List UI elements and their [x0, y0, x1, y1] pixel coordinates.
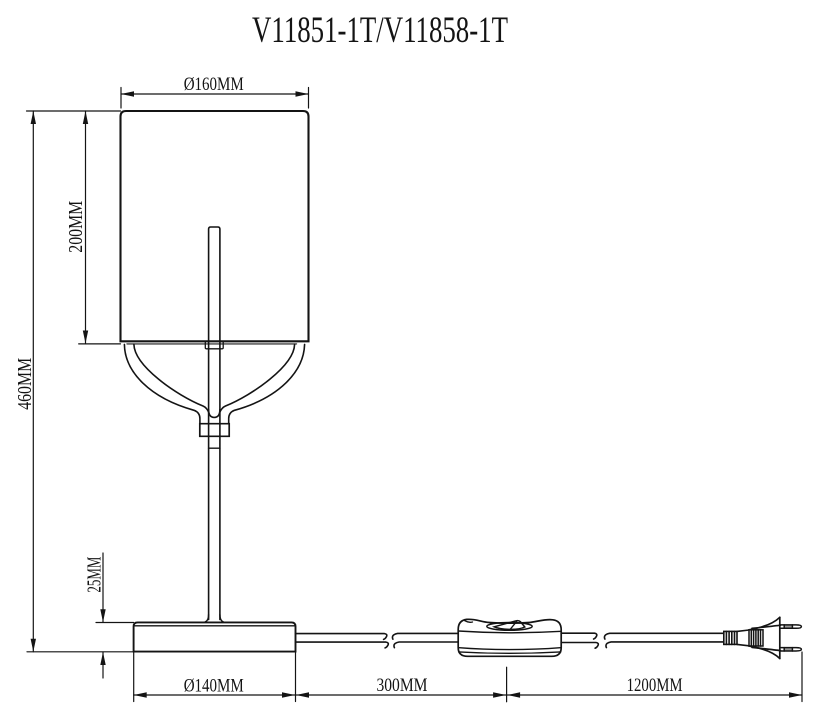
svg-text:Ø160MM: Ø160MM	[184, 74, 244, 95]
svg-text:25MM: 25MM	[83, 556, 105, 592]
svg-text:200MM: 200MM	[65, 201, 87, 253]
svg-text:460MM: 460MM	[14, 358, 36, 410]
svg-text:300MM: 300MM	[377, 675, 428, 696]
svg-text:1200MM: 1200MM	[627, 675, 683, 696]
svg-text:Ø140MM: Ø140MM	[184, 675, 244, 696]
svg-text:V11851-1T/V11858-1T: V11851-1T/V11858-1T	[252, 10, 508, 51]
